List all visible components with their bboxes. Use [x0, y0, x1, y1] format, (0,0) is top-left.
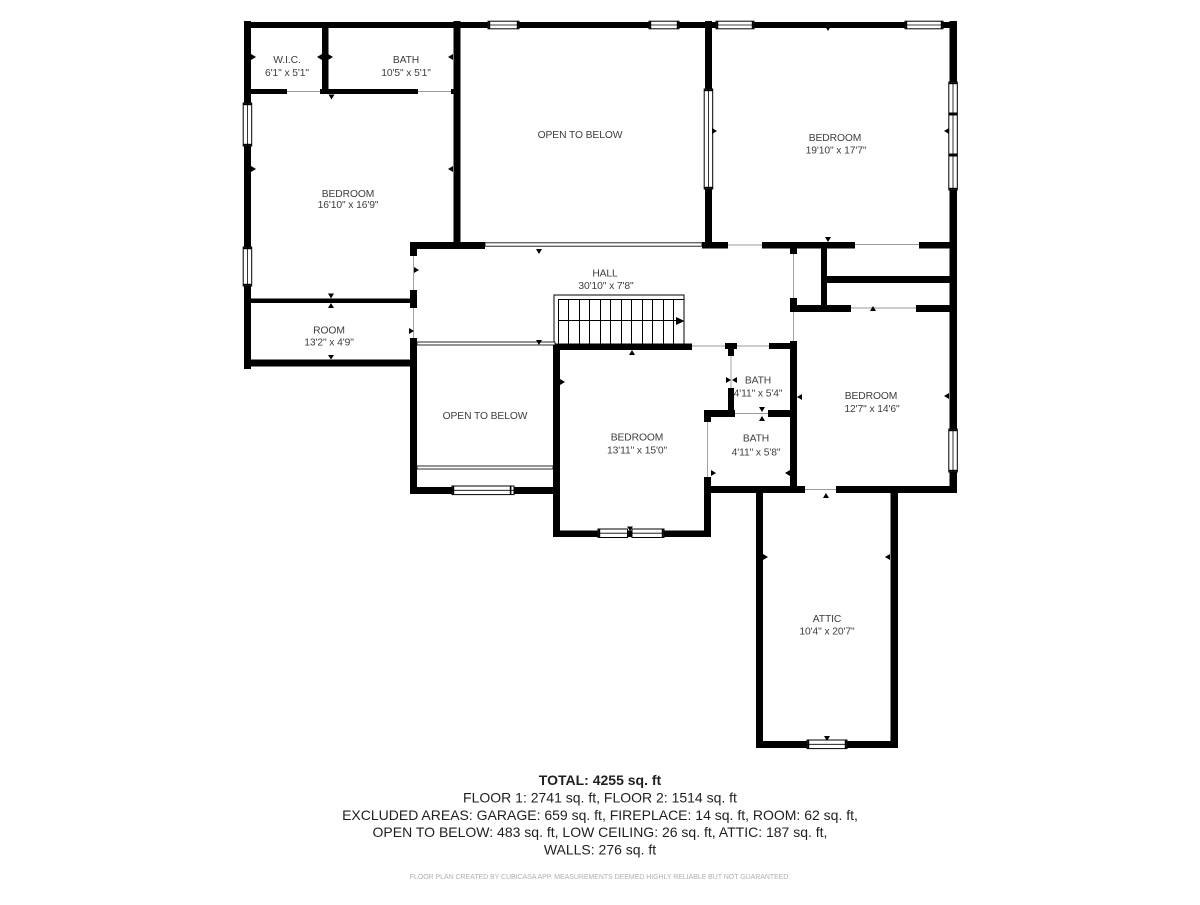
svg-text:19'10" x 17'7": 19'10" x 17'7" — [806, 146, 867, 157]
svg-text:30'10" x 7'8": 30'10" x 7'8" — [578, 281, 634, 292]
svg-text:W.I.C.: W.I.C. — [273, 55, 300, 66]
svg-text:TOTAL: 4255 sq. ft: TOTAL: 4255 sq. ft — [539, 772, 662, 788]
svg-text:13'2" x 4'9": 13'2" x 4'9" — [304, 338, 354, 349]
svg-text:OPEN TO BELOW: OPEN TO BELOW — [443, 411, 528, 422]
svg-text:BATH: BATH — [743, 434, 769, 445]
svg-text:BATH: BATH — [393, 55, 419, 66]
svg-text:10'4" x 20'7": 10'4" x 20'7" — [799, 627, 855, 638]
svg-text:12'7" x 14'6": 12'7" x 14'6" — [844, 404, 900, 415]
svg-text:BEDROOM: BEDROOM — [845, 391, 898, 402]
svg-text:EXCLUDED AREAS: GARAGE: 659 sq: EXCLUDED AREAS: GARAGE: 659 sq. ft, FIRE… — [342, 807, 858, 823]
svg-text:BEDROOM: BEDROOM — [809, 133, 862, 144]
svg-text:FLOOR 1: 2741 sq. ft, FLOOR 2:: FLOOR 1: 2741 sq. ft, FLOOR 2: 1514 sq. … — [463, 790, 737, 806]
svg-text:4'11" x 5'4": 4'11" x 5'4" — [734, 389, 783, 400]
svg-text:10'5" x 5'1": 10'5" x 5'1" — [381, 68, 431, 79]
svg-text:BATH: BATH — [745, 376, 771, 387]
svg-text:OPEN TO BELOW: 483 sq. ft, LOW: OPEN TO BELOW: 483 sq. ft, LOW CEILING: … — [373, 824, 828, 840]
svg-text:ATTIC: ATTIC — [813, 614, 842, 625]
svg-text:BEDROOM: BEDROOM — [611, 433, 664, 444]
svg-text:WALLS: 276 sq. ft: WALLS: 276 sq. ft — [544, 842, 656, 858]
svg-text:HALL: HALL — [592, 269, 618, 280]
svg-text:BEDROOM: BEDROOM — [322, 189, 375, 200]
svg-text:4'11" x 5'8": 4'11" x 5'8" — [732, 448, 781, 459]
svg-text:6'1" x 5'1": 6'1" x 5'1" — [265, 68, 309, 79]
svg-text:13'11" x 15'0": 13'11" x 15'0" — [607, 446, 667, 457]
svg-text:OPEN TO BELOW: OPEN TO BELOW — [538, 130, 623, 141]
svg-text:16'10" x 16'9": 16'10" x 16'9" — [318, 200, 379, 211]
svg-text:ROOM: ROOM — [313, 326, 345, 337]
svg-text:FLOOR PLAN CREATED BY CUBICASA: FLOOR PLAN CREATED BY CUBICASA APP. MEAS… — [410, 874, 791, 881]
